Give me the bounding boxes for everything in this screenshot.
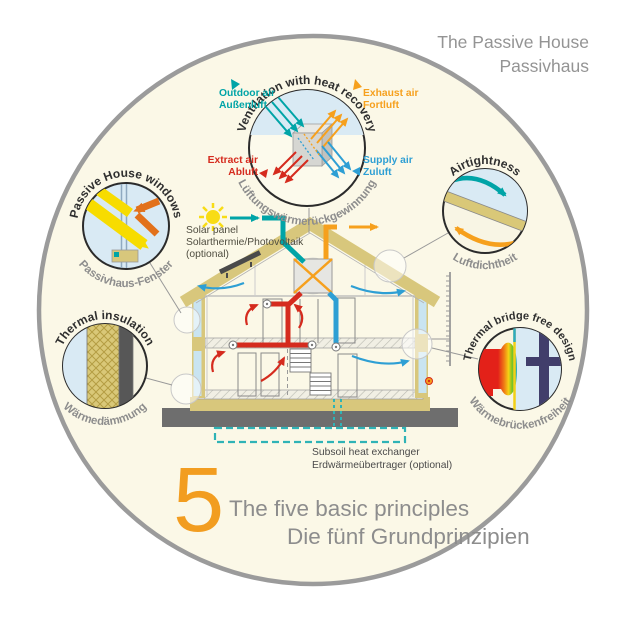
extract-air-label-en: Extract air: [208, 155, 258, 166]
subsoil-line1: Subsoil heat exchanger: [312, 447, 420, 458]
diagram-canvas: The Passive House Passivhaus: [0, 0, 622, 624]
solar-line1: Solar panel: [186, 225, 238, 236]
extract-air-label-de: Abluft: [228, 167, 258, 178]
footer-line-de: Die fünf Grundprinzipien: [287, 524, 530, 549]
title-line-en: The Passive House: [437, 32, 589, 52]
flame-icon: [426, 378, 433, 385]
supply-air-label-en: Supply air: [363, 155, 413, 166]
supply-air-label-de: Zuluft: [363, 167, 392, 178]
heat-recovery-unit: [294, 259, 332, 293]
subsoil-line2: Erdwärmeübertrager (optional): [312, 460, 452, 471]
exhaust-air-label-de: Fortluft: [363, 100, 400, 111]
solar-line2: Solarthermie/Photovoltaik: [186, 237, 304, 248]
outdoor-air-label-en: Outdoor air: [219, 88, 275, 99]
solar-line3: (optional): [186, 249, 229, 260]
page-title: The Passive House Passivhaus: [437, 32, 589, 76]
footer-line-en: The five basic principles: [229, 496, 469, 521]
title-line-de: Passivhaus: [500, 56, 590, 76]
footer-number: 5: [173, 449, 224, 551]
exhaust-air-label-en: Exhaust air: [363, 88, 419, 99]
outdoor-air-label-de: Außenluft: [219, 100, 268, 111]
passive-house-infographic: The Passive House Passivhaus: [0, 0, 622, 624]
